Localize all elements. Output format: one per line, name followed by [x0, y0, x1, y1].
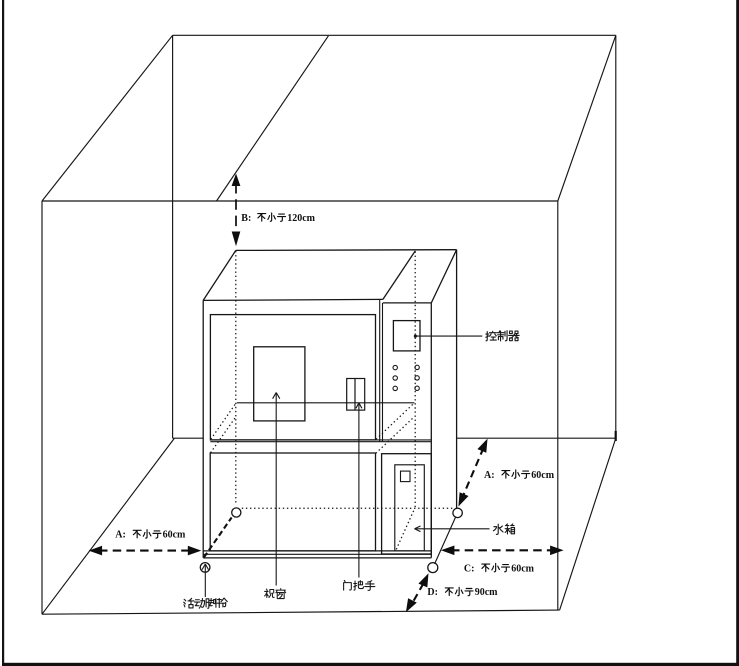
svg-text:D:: D: — [427, 587, 438, 598]
svg-text:120cm: 120cm — [287, 213, 315, 224]
svg-text:60cm: 60cm — [531, 470, 554, 481]
svg-text:A:: A: — [484, 470, 495, 481]
svg-text:60cm: 60cm — [511, 563, 534, 574]
svg-text:A:: A: — [115, 530, 126, 541]
svg-text:90cm: 90cm — [475, 587, 498, 598]
svg-text:60cm: 60cm — [163, 530, 186, 541]
svg-text:C:: C: — [464, 563, 475, 574]
svg-text:B:: B: — [241, 213, 251, 224]
